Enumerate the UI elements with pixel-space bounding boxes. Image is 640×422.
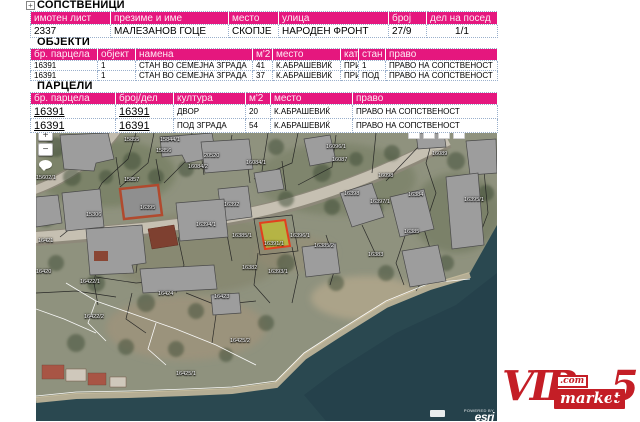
- column-header: бр. парцела: [31, 49, 98, 61]
- table-cell: ПРАВО НА СОПСТВЕНОСТ: [386, 61, 498, 71]
- column-header: дел на посед: [427, 12, 498, 25]
- logo-five-text: 5: [610, 364, 639, 408]
- parcels-table: бр. парцелаброј/делкултурам'2местоправо1…: [30, 92, 498, 133]
- table-cell: 16391: [31, 105, 116, 119]
- map-toolbar-button[interactable]: [453, 133, 465, 139]
- highlighted-parcel[interactable]: [260, 220, 290, 249]
- vipmarket5-logo: VIP .com market 5: [502, 371, 639, 418]
- table-cell: К.АБРАШЕВИЌ: [271, 119, 353, 133]
- parcel-link[interactable]: 16391: [34, 106, 65, 118]
- table-cell: К.АБРАШЕВИЌ: [273, 61, 341, 71]
- table-row: 1639116391ДВОР20К.АБРАШЕВИЌПРАВО НА СОПС…: [31, 105, 498, 119]
- owners-table: имотен листпрезиме и имеместоулицабројде…: [30, 11, 498, 38]
- table-row: 1639116391ПОД ЗГРАДА54К.АБРАШЕВИЌПРАВО Н…: [31, 119, 498, 133]
- table-cell: ПРАВО НА СОПСТВЕНОСТ: [353, 105, 498, 119]
- table-cell: 16391: [116, 119, 174, 133]
- table-row: 163911СТАН ВО СЕМЕЈНА ЗГРАДА41К.АБРАШЕВИ…: [31, 61, 498, 71]
- column-header: кат: [341, 49, 359, 61]
- column-header: м'2: [253, 49, 273, 61]
- table-cell: 16391: [31, 119, 116, 133]
- column-header: стан: [359, 49, 386, 61]
- table-cell: 1: [98, 61, 136, 71]
- callout-icon[interactable]: [39, 160, 52, 169]
- parcel-link[interactable]: 16391: [119, 106, 150, 118]
- column-header: број: [389, 12, 427, 25]
- table-cell: ПРАВО НА СОПСТВЕНОСТ: [353, 119, 498, 133]
- table-cell: СТАН ВО СЕМЕЈНА ЗГРАДА: [136, 71, 253, 81]
- column-header: улица: [279, 12, 389, 25]
- table-cell: СТАН ВО СЕМЕЈНА ЗГРАДА: [136, 61, 253, 71]
- esri-attribution: POWERED BY esri: [464, 408, 494, 420]
- attribution-badge: [430, 410, 445, 417]
- column-header: право: [386, 49, 498, 61]
- column-header: култура: [174, 93, 246, 105]
- cadastral-map[interactable]: 1585515844/1158562052016084/216084/11609…: [36, 133, 497, 421]
- zoom-in-button[interactable]: +: [38, 133, 53, 141]
- section-title-parcels: ПАРЦЕЛИ: [37, 81, 93, 92]
- table-cell: НАРОДЕН ФРОНТ: [279, 25, 389, 38]
- table-cell: К.АБРАШЕВИЌ: [271, 105, 353, 119]
- table-cell: СКОПЈЕ: [229, 25, 279, 38]
- column-header: намена: [136, 49, 253, 61]
- table-cell: 27/9: [389, 25, 427, 38]
- table-cell: ПРИ: [341, 71, 359, 81]
- table-cell: 16391: [31, 61, 98, 71]
- table-cell: 1/1: [427, 25, 498, 38]
- column-header: презиме и име: [111, 12, 229, 25]
- section-title-owners: СОПСТВЕНИЦИ: [37, 0, 125, 11]
- column-header: објект: [98, 49, 136, 61]
- zoom-out-button[interactable]: −: [38, 143, 53, 156]
- logo-com-badge: .com: [556, 375, 588, 388]
- column-header: имотен лист: [31, 12, 111, 25]
- table-cell: 41: [253, 61, 273, 71]
- table-cell: ПРАВО НА СОПСТВЕНОСТ: [386, 71, 498, 81]
- table-cell: 20: [246, 105, 271, 119]
- table-cell: ДВОР: [174, 105, 246, 119]
- table-cell: К.АБРАШЕВИЌ: [273, 71, 341, 81]
- column-header: м'2: [246, 93, 271, 105]
- table-cell: 1: [359, 61, 386, 71]
- table-cell: ПОД ЗГРАДА: [174, 119, 246, 133]
- table-row: 2337МАЛЕЗАНОВ ГОЦЕСКОПЈЕНАРОДЕН ФРОНТ27/…: [31, 25, 498, 38]
- parcel-link[interactable]: 16391: [34, 120, 65, 132]
- map-toolbar-button[interactable]: [438, 133, 450, 139]
- table-cell: 16391: [116, 105, 174, 119]
- column-header: место: [229, 12, 279, 25]
- powered-by-label: POWERED BY: [464, 408, 494, 414]
- column-header: место: [271, 93, 353, 105]
- red-roofed-building: [120, 185, 162, 219]
- column-header: место: [273, 49, 341, 61]
- table-cell: МАЛЕЗАНОВ ГОЦЕ: [111, 25, 229, 38]
- section-title-objects: ОБЈЕКТИ: [37, 37, 90, 48]
- map-toolbar-button[interactable]: [408, 133, 420, 139]
- table-cell: 2337: [31, 25, 111, 38]
- column-header: право: [353, 93, 498, 105]
- table-cell: 54: [246, 119, 271, 133]
- map-toolbar-button[interactable]: [423, 133, 435, 139]
- table-cell: 37: [253, 71, 273, 81]
- table-cell: 1: [98, 71, 136, 81]
- tree-expander-icon[interactable]: +: [26, 1, 35, 10]
- table-cell: ПОД: [359, 71, 386, 81]
- column-header: бр. парцела: [31, 93, 116, 105]
- table-cell: 16391: [31, 71, 98, 81]
- satellite-imagery: [36, 133, 497, 421]
- column-header: број/дел: [116, 93, 174, 105]
- table-row: 163911СТАН ВО СЕМЕЈНА ЗГРАДА37К.АБРАШЕВИ…: [31, 71, 498, 81]
- objects-table: бр. парцелаобјектнаменам'2местокатстанпр…: [30, 48, 498, 81]
- table-cell: ПРИ: [341, 61, 359, 71]
- parcel-link[interactable]: 16391: [119, 120, 150, 132]
